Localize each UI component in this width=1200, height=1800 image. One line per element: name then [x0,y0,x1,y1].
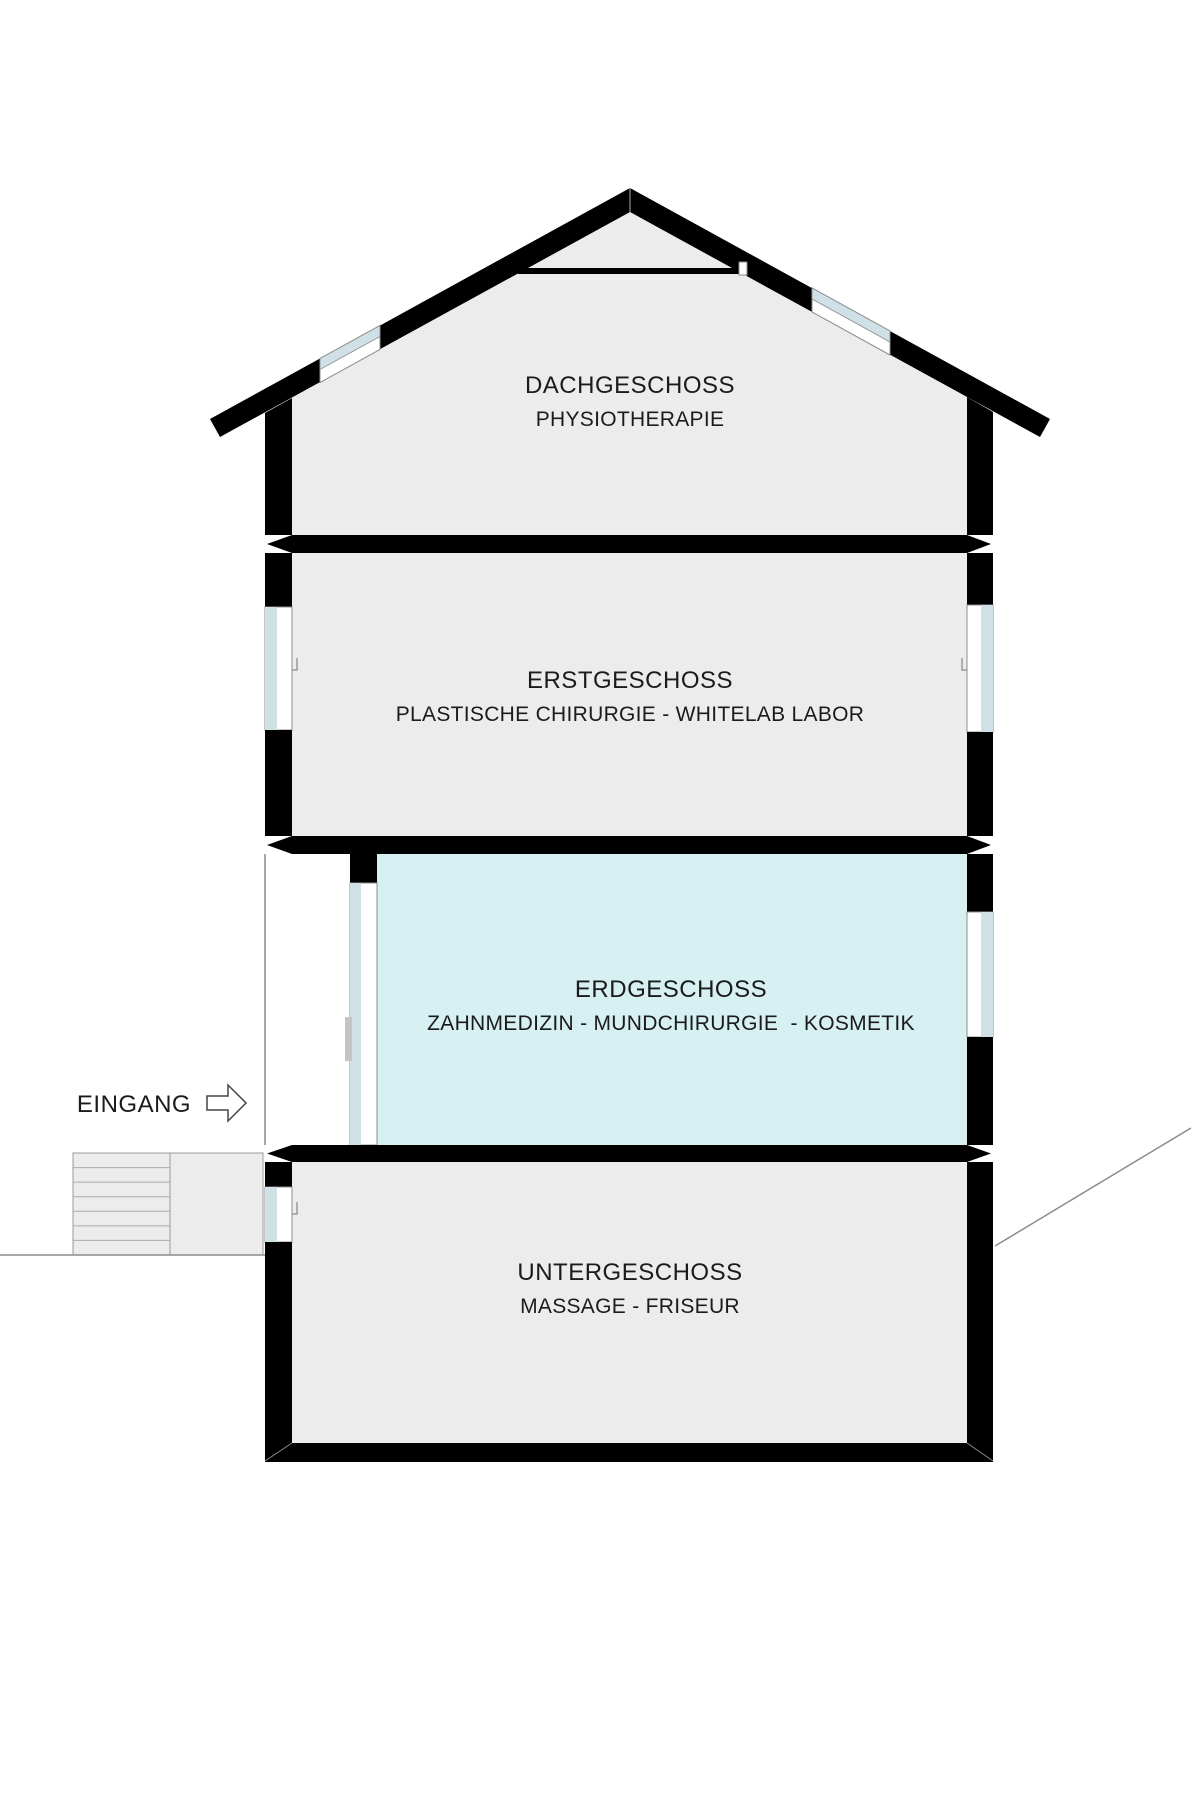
glass-entrance-door [345,883,377,1145]
collar-beam-end-detail [739,262,747,275]
floor-title-untergeschoss: UNTERGESCHOSS [517,1259,742,1286]
floor-subtitle-untergeschoss: MASSAGE - FRISEUR [520,1295,740,1318]
erst-wall-left-upper [265,553,292,607]
floor-subtitle-dachgeschoss: PHYSIOTHERAPIE [536,408,725,431]
window-erst-right [962,605,993,732]
attic-wall-left [265,398,292,535]
floor-slab-erst-erd [265,836,993,854]
floor-subtitle-erstgeschoss: PLASTISCHE CHIRURGIE - WHITELAB LABOR [396,703,865,726]
window-erst-left [265,607,297,730]
erst-interior [292,553,967,836]
exterior-stairs [0,1153,265,1255]
entrance-annotation: EINGANG [77,1085,246,1121]
entrance-label: EINGANG [77,1091,191,1118]
floor-title-erstgeschoss: ERSTGESCHOSS [527,667,733,694]
building-section-drawing: DACHGESCHOSS PHYSIOTHERAPIE ERSTGESCHOSS [0,0,1200,1800]
floor-erstgeschoss: ERSTGESCHOSS PLASTISCHE CHIRURGIE - WHIT… [265,553,993,836]
floor-subtitle-erdgeschoss: ZAHNMEDIZIN - MUNDCHIRURGIE - KOSMETIK [427,1012,915,1035]
attic-wall-right [967,397,993,535]
glass-front-header [350,854,377,883]
unter-wall-right [967,1162,993,1443]
erst-wall-right-lower [967,732,993,836]
collar-beam [518,268,747,274]
stairs-body [73,1153,263,1255]
erst-wall-left-lower [265,730,292,836]
floor-untergeschoss: UNTERGESCHOSS MASSAGE - FRISEUR [265,1162,993,1443]
floor-title-erdgeschoss: ERDGESCHOSS [575,976,767,1003]
erd-wall-right-upper [967,854,993,912]
floor-slab-dach-erst [265,535,993,553]
foundation-slab [265,1443,993,1462]
floor-dachgeschoss: DACHGESCHOSS PHYSIOTHERAPIE [210,188,1050,535]
erst-wall-right-upper [967,553,993,605]
erd-wall-right-lower [967,1037,993,1145]
unter-wall-left-upper [265,1162,292,1187]
door-handle [345,1017,352,1061]
entrance-arrow-icon [207,1085,246,1121]
unter-wall-left-lower [265,1242,292,1443]
window-erd-right [967,912,993,1037]
floor-slab-erd-unter [265,1145,993,1162]
floor-erdgeschoss: ERDGESCHOSS ZAHNMEDIZIN - MUNDCHIRURGIE … [265,854,993,1145]
window-unter-left [265,1187,297,1242]
terrain-line-right [995,1128,1191,1246]
floor-title-dachgeschoss: DACHGESCHOSS [525,372,735,399]
